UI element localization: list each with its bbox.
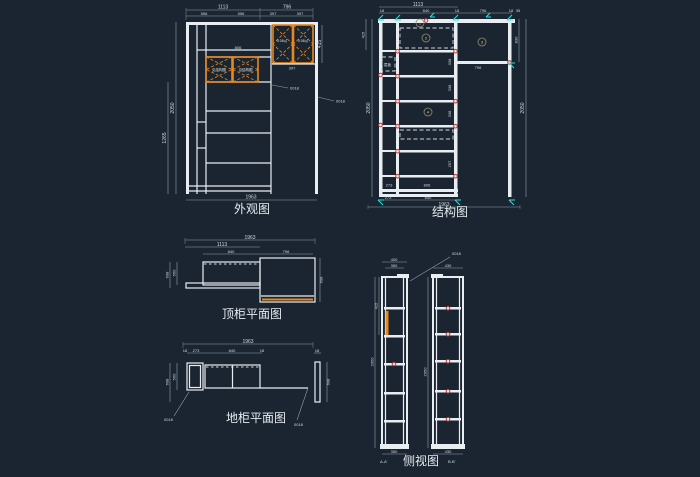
svg-text:0.08㎡: 0.08㎡ <box>298 38 309 43</box>
svg-text:0018: 0018 <box>164 417 174 422</box>
svg-text:556: 556 <box>238 11 245 16</box>
elevation-title: 外观图 <box>234 202 270 216</box>
side-b-fastener-marks <box>446 306 450 421</box>
svg-text:0018: 0018 <box>290 86 300 91</box>
svg-text:18: 18 <box>455 8 460 13</box>
side-title: 侧视图 <box>403 453 439 468</box>
cad-drawing-area[interactable]: 1113 796 556 556 397 397 1963 2050 1265 … <box>0 0 700 477</box>
svg-text:560: 560 <box>172 269 177 276</box>
svg-text:397: 397 <box>289 66 296 71</box>
view-base-cabinet-plan: 1963 18 273 840 18 18 608 560 608 <box>164 339 331 427</box>
svg-text:18: 18 <box>183 348 188 353</box>
side-dimensions: 400 350 430 2050 415 2050 350 430 0018 <box>370 251 464 454</box>
tiny-part-label: 层板 <box>384 62 392 67</box>
svg-text:见结构图: 见结构图 <box>239 67 253 72</box>
svg-text:2050: 2050 <box>370 357 375 367</box>
svg-text:608: 608 <box>165 271 170 278</box>
svg-text:796: 796 <box>283 249 290 254</box>
svg-text:18: 18 <box>509 8 514 13</box>
svg-text:273: 273 <box>193 348 200 353</box>
view-top-cabinet-plan: 1963 1113 840 796 608 560 608 顶柜平面图 <box>165 235 324 321</box>
section-mark-b: B-B' <box>448 459 456 464</box>
svg-text:297: 297 <box>447 160 452 167</box>
svg-text:273: 273 <box>386 183 393 188</box>
svg-text:338: 338 <box>447 84 452 91</box>
svg-text:1963: 1963 <box>245 195 256 201</box>
svg-text:608: 608 <box>326 378 331 385</box>
svg-text:18: 18 <box>260 348 265 353</box>
cad-canvas[interactable]: 1113 796 556 556 397 397 1963 2050 1265 … <box>0 0 700 477</box>
svg-text:0018: 0018 <box>452 251 462 256</box>
svg-text:2050: 2050 <box>170 102 176 113</box>
svg-text:400: 400 <box>391 257 398 262</box>
svg-text:4: 4 <box>427 110 430 115</box>
svg-text:1113: 1113 <box>218 5 229 11</box>
svg-text:350: 350 <box>391 263 398 268</box>
svg-text:608: 608 <box>319 276 324 283</box>
drawer-dashed-row <box>400 130 453 139</box>
svg-text:796: 796 <box>283 5 292 11</box>
svg-text:18: 18 <box>315 348 320 353</box>
view-elevation: 1113 796 556 556 397 397 1963 2050 1265 … <box>162 5 346 217</box>
svg-text:0.08㎡: 0.08㎡ <box>277 38 288 43</box>
svg-text:1265: 1265 <box>162 132 168 143</box>
svg-text:2: 2 <box>425 36 428 41</box>
small-doors: 见结构图 见结构图 <box>206 57 258 82</box>
side-b-shelves <box>435 307 461 421</box>
svg-text:350: 350 <box>391 449 398 454</box>
svg-text:415: 415 <box>361 31 366 38</box>
top-plan-geometry <box>186 258 315 302</box>
svg-text:415: 415 <box>374 302 379 309</box>
svg-text:0018: 0018 <box>336 99 346 104</box>
svg-text:840: 840 <box>423 8 430 13</box>
svg-text:35: 35 <box>516 8 521 13</box>
svg-text:806: 806 <box>235 45 242 50</box>
svg-text:430: 430 <box>445 449 452 454</box>
svg-text:3: 3 <box>481 40 484 45</box>
structure-title: 结构图 <box>432 204 468 219</box>
svg-text:397: 397 <box>270 11 277 16</box>
svg-text:2050: 2050 <box>423 367 428 377</box>
svg-text:796: 796 <box>480 8 487 13</box>
svg-text:2050: 2050 <box>520 102 526 113</box>
svg-text:1963: 1963 <box>244 235 255 241</box>
svg-text:796: 796 <box>475 65 482 70</box>
svg-text:2050: 2050 <box>366 102 372 113</box>
svg-text:806: 806 <box>424 183 431 188</box>
svg-text:338: 338 <box>447 110 452 117</box>
svg-text:840: 840 <box>228 249 235 254</box>
svg-text:18: 18 <box>380 8 385 13</box>
big-doors: 0.08㎡ 0.08㎡ <box>273 25 313 63</box>
svg-text:397: 397 <box>297 11 304 16</box>
view-side: 400 350 430 2050 415 2050 350 430 0018 <box>370 251 466 468</box>
side-frame-b <box>431 274 465 449</box>
svg-text:556: 556 <box>201 11 208 16</box>
svg-text:338: 338 <box>447 58 452 65</box>
svg-text:430: 430 <box>445 263 452 268</box>
base-plan-title: 地柜平面图 <box>226 411 286 425</box>
structure-dimensions: 1113 18 840 18 796 18 35 273 806 273 840… <box>361 2 527 209</box>
svg-text:0018: 0018 <box>294 422 304 427</box>
svg-text:1963: 1963 <box>242 339 253 345</box>
section-mark-a: A-A' <box>380 459 388 464</box>
top-plan-title: 顶柜平面图 <box>222 307 282 321</box>
side-a-orange-panel <box>386 311 389 335</box>
svg-text:840: 840 <box>229 348 236 353</box>
svg-text:560: 560 <box>172 373 177 380</box>
view-structure: 1113 18 840 18 796 18 35 273 806 273 840… <box>361 2 527 219</box>
top-plan-dimensions: 1963 1113 840 796 608 560 608 <box>165 235 324 302</box>
elevation-leaders: 0018 0018 <box>272 85 346 104</box>
structure-shelves <box>382 50 454 178</box>
side-frame-a <box>380 274 409 449</box>
svg-text:830: 830 <box>514 36 519 43</box>
svg-text:608: 608 <box>165 378 170 385</box>
svg-text:见结构图: 见结构图 <box>212 67 226 72</box>
svg-text:1113: 1113 <box>217 242 228 248</box>
structure-frame: 层板 1 2 3 4 <box>378 13 515 205</box>
